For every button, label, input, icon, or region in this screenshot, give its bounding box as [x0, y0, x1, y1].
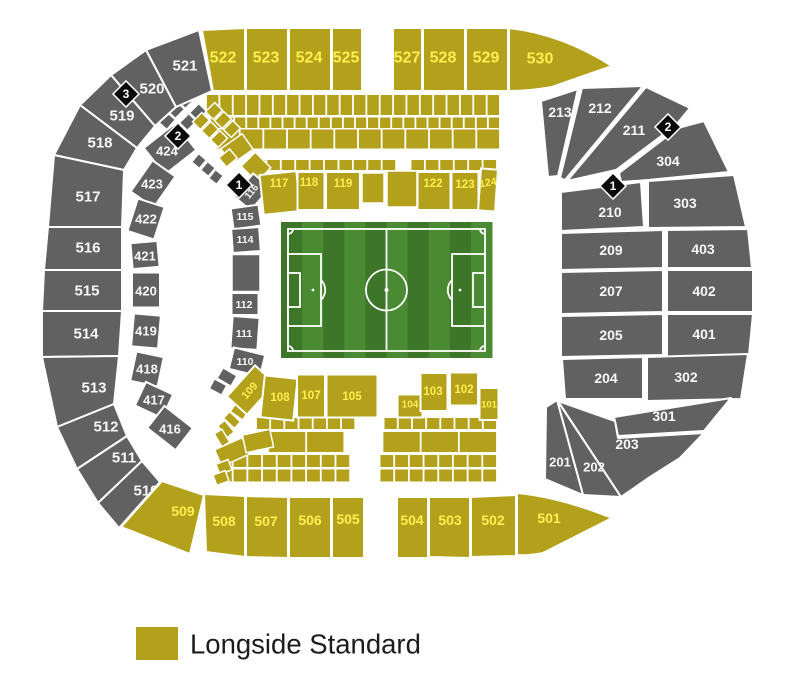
- pitch-grass-stripe: [344, 222, 366, 358]
- seat-block: [474, 95, 486, 115]
- seat-block: [439, 470, 452, 482]
- section-207: 207: [561, 270, 663, 314]
- seat-block: [292, 455, 305, 467]
- section-421: 421: [130, 241, 159, 269]
- seat-block: [483, 470, 496, 482]
- seat-block: [384, 418, 396, 429]
- section-label: 502: [481, 512, 505, 528]
- seat-block: [424, 455, 437, 467]
- section-label: 518: [87, 135, 112, 152]
- seat-block: [404, 118, 414, 129]
- section-111: 111: [230, 316, 259, 350]
- seat-block: [489, 118, 499, 129]
- seat-block: [434, 95, 446, 115]
- seat-block: [234, 470, 247, 482]
- seat-block: [242, 429, 273, 452]
- section-527[interactable]: 527: [393, 28, 422, 91]
- seat-block: [339, 160, 352, 170]
- seat-block: [311, 160, 324, 170]
- section-label: 505: [336, 511, 360, 527]
- section-112: 112: [232, 293, 259, 315]
- section-101[interactable]: 101: [480, 388, 499, 420]
- seat-block: [395, 470, 408, 482]
- section-118[interactable]: 118: [298, 172, 325, 210]
- section-label: 403: [691, 241, 715, 257]
- seat-block: [287, 95, 299, 115]
- seat-block: [368, 160, 381, 170]
- seat-block: [469, 160, 482, 170]
- section-label: 513: [81, 380, 106, 397]
- seat-block: [307, 470, 320, 482]
- section-label: 528: [430, 50, 457, 67]
- seat-block: [336, 470, 349, 482]
- seat-block: [288, 130, 310, 149]
- seat-block: [454, 470, 467, 482]
- seat-block: [220, 95, 232, 115]
- pitch: [281, 222, 493, 358]
- seat-block: [247, 95, 259, 115]
- seat-block: [292, 470, 305, 482]
- seat-block: [453, 118, 463, 129]
- seat-block: [422, 432, 458, 452]
- section-label: 123: [455, 179, 474, 191]
- section-label: 512: [93, 419, 118, 436]
- seat-block: [269, 432, 305, 452]
- section-419: 419: [131, 313, 161, 348]
- section-label: 421: [134, 249, 156, 264]
- seat-block: [441, 418, 453, 429]
- section-205: 205: [561, 314, 663, 357]
- section-label: 511: [112, 450, 136, 467]
- seat-block: [354, 160, 367, 170]
- seat-block: [383, 432, 419, 452]
- seat-block: [368, 118, 378, 129]
- seat-block: [439, 455, 452, 467]
- section-508[interactable]: 508: [204, 494, 245, 557]
- section-label: 203: [615, 436, 639, 452]
- seat-block: [341, 95, 353, 115]
- section-528[interactable]: 528: [423, 28, 465, 91]
- seat-block: [362, 173, 384, 203]
- section-label: 517: [75, 189, 100, 206]
- gate-marker-label: 3: [123, 87, 130, 101]
- seat-block: [283, 118, 293, 129]
- seat-block: [392, 118, 402, 129]
- section-label: 212: [588, 100, 612, 116]
- section-105[interactable]: 105: [327, 375, 378, 418]
- seat-block: [380, 470, 393, 482]
- section-label: 105: [342, 391, 362, 403]
- seat-block: [299, 418, 311, 429]
- seat-block: [424, 470, 437, 482]
- section-label: 122: [423, 178, 442, 190]
- section-label: 107: [301, 390, 320, 402]
- section-label: 516: [75, 240, 100, 257]
- section-530[interactable]: 530: [509, 28, 612, 91]
- seat-block: [399, 418, 411, 429]
- seat-block: [213, 471, 229, 486]
- section-402: 402: [667, 270, 753, 312]
- seat-block: [312, 130, 334, 149]
- seat-block: [257, 418, 269, 429]
- seat-block: [469, 470, 482, 482]
- section-422: 422: [127, 199, 164, 240]
- section-label: 501: [537, 510, 561, 526]
- seat-block: [416, 118, 426, 129]
- seat-block: [282, 160, 295, 170]
- seat-block: [248, 455, 261, 467]
- seat-block: [271, 118, 281, 129]
- pitch-grass-stripe: [365, 222, 387, 358]
- seat-block: [296, 160, 309, 170]
- seat-block: [260, 95, 272, 115]
- seat-block: [359, 130, 381, 149]
- section-label: 506: [298, 512, 322, 528]
- seat-block: [383, 160, 396, 170]
- seat-block: [344, 118, 354, 129]
- seat-block: [395, 455, 408, 467]
- section-label: 118: [300, 177, 319, 189]
- section-119[interactable]: 119: [326, 172, 360, 210]
- section-label: 515: [74, 283, 99, 300]
- section-label: 115: [237, 211, 254, 223]
- section-103[interactable]: 103: [421, 373, 448, 411]
- section-516: 516: [44, 227, 122, 270]
- seat-block: [383, 130, 405, 149]
- section-label: 503: [438, 512, 462, 528]
- section-label: 119: [334, 178, 353, 190]
- seat-block: [314, 95, 326, 115]
- section-label: 422: [135, 212, 157, 227]
- section-524[interactable]: 524: [289, 28, 331, 91]
- seat-block: [483, 455, 496, 467]
- gate-marker-label: 1: [236, 178, 243, 192]
- section-507[interactable]: 507: [246, 496, 288, 558]
- seat-block: [332, 118, 342, 129]
- seat-block: [263, 455, 276, 467]
- section-label: 514: [73, 326, 99, 343]
- seat-block: [387, 171, 417, 207]
- seat-block: [264, 130, 286, 149]
- section-label: 304: [656, 153, 680, 169]
- seat-block: [460, 432, 496, 452]
- seat-block: [274, 95, 286, 115]
- seat-block: [336, 455, 349, 467]
- gate-marker-label: 1: [610, 179, 617, 193]
- section-204: 204: [562, 357, 643, 399]
- section-523[interactable]: 523: [246, 28, 288, 91]
- seat-block: [410, 455, 423, 467]
- section-114: 114: [231, 227, 261, 253]
- legend: Longside Standard: [136, 627, 421, 660]
- section-301: 301: [614, 398, 731, 436]
- seat-block: [308, 118, 318, 129]
- section-label: 525: [333, 50, 360, 67]
- seat-block: [234, 95, 246, 115]
- section-529[interactable]: 529: [466, 28, 508, 91]
- section-label: 204: [594, 370, 618, 386]
- section-104[interactable]: 104: [398, 395, 423, 418]
- seat-block: [322, 455, 335, 467]
- seat-block: [447, 95, 459, 115]
- seat-block: [314, 418, 326, 429]
- seat-block: [354, 95, 366, 115]
- section-label: 417: [143, 393, 165, 408]
- section-501[interactable]: 501: [517, 493, 612, 555]
- section-label: 302: [674, 369, 698, 385]
- section-label: 202: [583, 460, 605, 475]
- seat-block: [367, 95, 379, 115]
- seat-block: [320, 118, 330, 129]
- legend-item: Longside Standard: [136, 627, 421, 660]
- section-label: 519: [109, 108, 134, 125]
- section-label: 117: [270, 178, 289, 190]
- section-420: 420: [132, 273, 160, 308]
- seat-block: [335, 130, 357, 149]
- gate-marker-label: 2: [175, 129, 182, 143]
- seat-block: [461, 95, 473, 115]
- section-label: 522: [210, 50, 237, 67]
- seat-block: [248, 470, 261, 482]
- seat-block: [477, 130, 499, 149]
- section-label: 102: [454, 384, 473, 396]
- section-label: 201: [549, 455, 571, 470]
- section-115: 115: [231, 205, 262, 230]
- section-label: 211: [623, 122, 646, 138]
- seat-block: [307, 432, 343, 452]
- seat-block: [455, 418, 467, 429]
- seat-block: [477, 118, 487, 129]
- seat-block: [427, 418, 439, 429]
- seat-block: [406, 130, 428, 149]
- section-label: 205: [599, 327, 623, 343]
- section-label: 507: [254, 513, 278, 529]
- legend-swatch: [136, 627, 178, 660]
- seat-block: [426, 160, 439, 170]
- section-label: 402: [692, 283, 716, 299]
- section-label: 104: [402, 400, 419, 411]
- section-302: 302: [647, 354, 748, 401]
- seat-block: [300, 95, 312, 115]
- seat-block: [488, 95, 500, 115]
- section-label: 508: [212, 513, 236, 529]
- section-401: 401: [667, 314, 753, 357]
- seat-block: [411, 160, 424, 170]
- section-label: 521: [172, 58, 197, 75]
- section-502[interactable]: 502: [471, 495, 516, 557]
- section-503[interactable]: 503: [429, 497, 470, 558]
- seat-map-page: 5215205195185175165155145135125115105095…: [0, 0, 797, 695]
- seat-block: [327, 95, 339, 115]
- seat-block: [380, 118, 390, 129]
- section-123[interactable]: 123: [452, 172, 479, 210]
- seat-block: [394, 95, 406, 115]
- seat-block: [295, 118, 305, 129]
- pitch-grass-stripe: [471, 222, 493, 358]
- section-102[interactable]: 102: [450, 373, 478, 406]
- section-117[interactable]: 117: [260, 171, 301, 215]
- seat-block: [328, 418, 340, 429]
- section-label: 111: [236, 328, 253, 340]
- legend-item-label: Longside Standard: [190, 629, 421, 660]
- seat-block: [469, 455, 482, 467]
- seat-block: [454, 130, 476, 149]
- section-label: 101: [481, 400, 498, 411]
- section-label: 509: [171, 503, 195, 519]
- section-label: 504: [400, 512, 424, 528]
- seat-block: [247, 118, 257, 129]
- section-label: 207: [599, 283, 623, 299]
- section-label: 423: [141, 177, 163, 192]
- section-label: 210: [598, 204, 622, 220]
- pitch-grass-stripe: [387, 222, 409, 358]
- seat-block: [356, 118, 366, 129]
- section-506[interactable]: 506: [289, 497, 331, 558]
- section-label: 114: [237, 234, 254, 246]
- seat-block: [380, 455, 393, 467]
- section-label: 108: [270, 392, 290, 404]
- section-label: 112: [236, 299, 253, 311]
- section-122[interactable]: 122: [418, 172, 451, 210]
- section-303: 303: [648, 175, 746, 228]
- seat-block: [428, 118, 438, 129]
- seat-block: [325, 160, 338, 170]
- section-label: 303: [673, 195, 697, 211]
- section-label: 416: [159, 422, 181, 437]
- seat-block: [307, 455, 320, 467]
- seat-block: [454, 455, 467, 467]
- section-label: 523: [253, 50, 280, 67]
- seat-block: [232, 255, 260, 292]
- seat-block: [381, 95, 393, 115]
- seat-block: [410, 470, 423, 482]
- gate-marker-label: 2: [665, 120, 672, 134]
- section-label: 418: [136, 362, 158, 377]
- section-505[interactable]: 505: [332, 497, 364, 558]
- section-label: 401: [692, 326, 716, 342]
- section-403: 403: [667, 229, 752, 268]
- seat-block: [407, 95, 419, 115]
- section-label: 527: [394, 50, 421, 67]
- seat-block: [322, 470, 335, 482]
- seat-block: [413, 418, 425, 429]
- seat-block: [440, 118, 450, 129]
- seat-block: [455, 160, 468, 170]
- section-label: 213: [548, 104, 572, 120]
- section-525[interactable]: 525: [332, 28, 362, 91]
- seat-block: [440, 160, 453, 170]
- section-label: 524: [296, 50, 323, 67]
- seat-block: [278, 470, 291, 482]
- section-label: 530: [527, 51, 554, 68]
- section-108[interactable]: 108: [260, 375, 297, 420]
- stadium-map: 5215205195185175165155145135125115105095…: [0, 0, 797, 695]
- section-504[interactable]: 504: [397, 497, 428, 558]
- seat-block: [430, 130, 452, 149]
- seat-block: [342, 418, 354, 429]
- seat-block: [278, 455, 291, 467]
- section-124[interactable]: 124: [478, 168, 498, 211]
- pitch-grass-stripe: [323, 222, 345, 358]
- seat-block: [263, 470, 276, 482]
- pitch-grass-stripe: [408, 222, 430, 358]
- section-514: 514: [42, 311, 122, 357]
- section-label: 301: [652, 408, 676, 424]
- section-label: 420: [135, 284, 157, 299]
- section-label: 209: [599, 242, 623, 258]
- section-107[interactable]: 107: [297, 375, 325, 418]
- section-label: 520: [139, 81, 164, 98]
- seat-block: [421, 95, 433, 115]
- section-label: 419: [135, 324, 157, 339]
- seat-block: [465, 118, 475, 129]
- section-209: 209: [561, 230, 663, 270]
- section-515: 515: [42, 270, 122, 311]
- section-label: 110: [237, 356, 254, 368]
- seat-block: [259, 118, 269, 129]
- section-label: 103: [423, 386, 442, 398]
- section-label: 529: [473, 50, 500, 67]
